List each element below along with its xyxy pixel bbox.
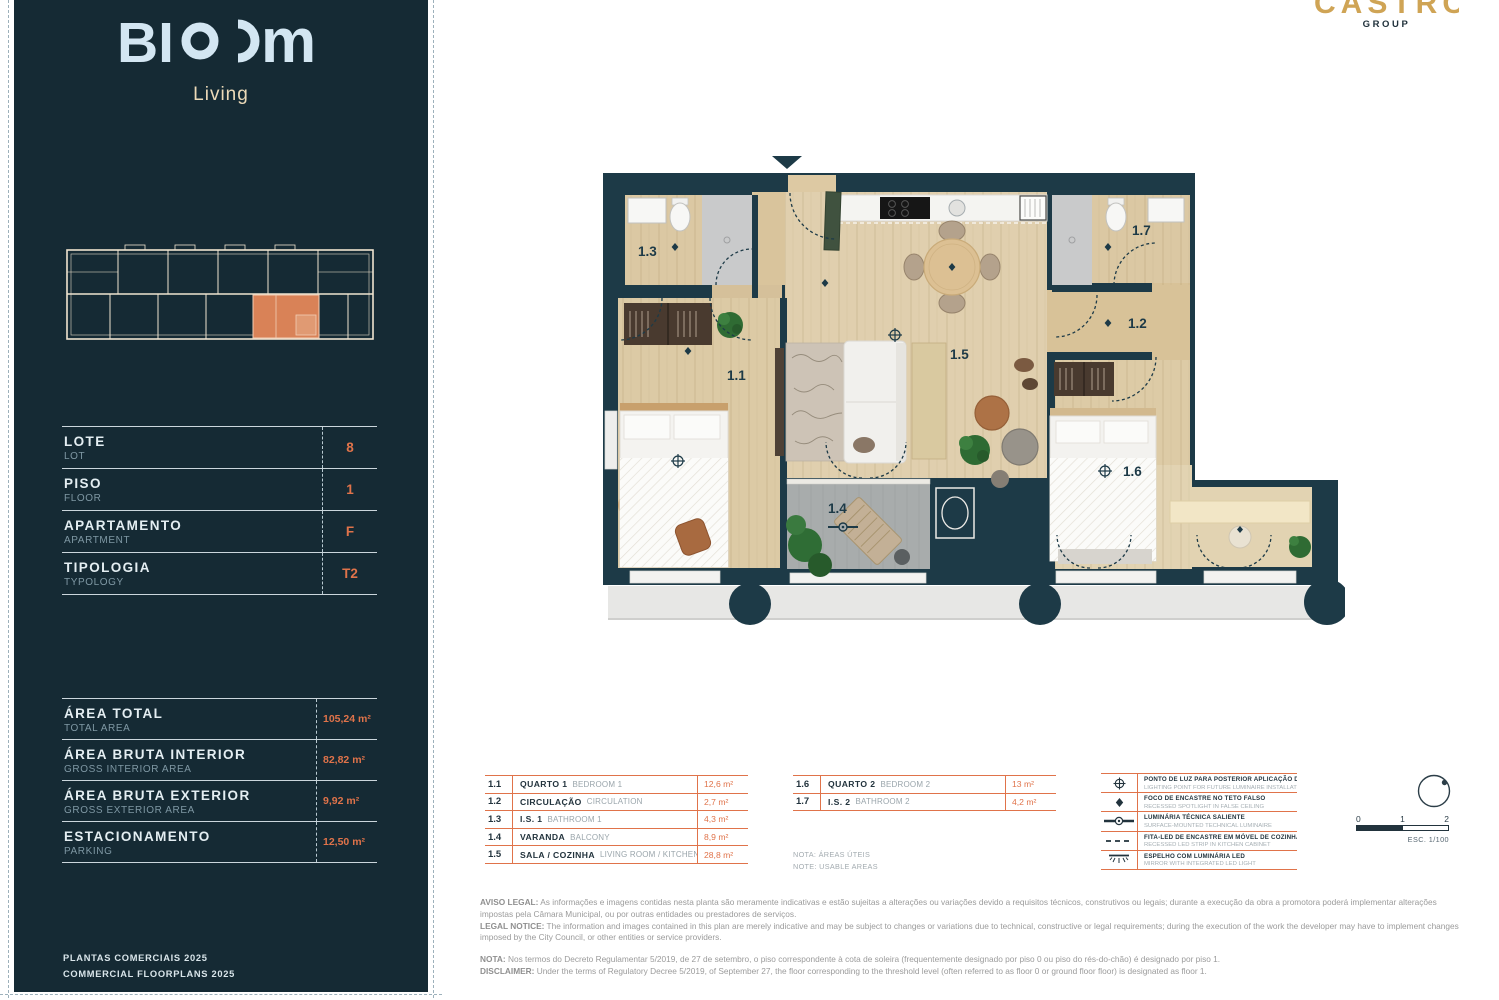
castro-name: CASTRO — [1314, 0, 1459, 17]
detail-row-apartamento: APARTAMENTO APARTMENT F — [62, 511, 377, 553]
recessed-spotlight-icon — [1101, 793, 1138, 811]
row-label-pt: ÁREA BRUTA EXTERIOR — [64, 788, 316, 803]
building-overview-plan — [63, 237, 378, 352]
entrance-arrow-icon — [772, 156, 802, 169]
walkway — [608, 579, 1345, 625]
scale-tick: 2 — [1444, 814, 1449, 824]
legend-row: 1.1 QUARTO 1 BEDROOM 1 12,6 m² — [485, 775, 748, 793]
crop-mark-left — [8, 0, 9, 998]
legend-name-pt: CIRCULAÇÃO — [520, 797, 582, 807]
symbol-label-en: RECESSED SPOTLIGHT IN FALSE CEILING — [1144, 804, 1297, 810]
legend-name-en: BEDROOM 1 — [572, 780, 622, 789]
regulatory-note: NOTA: Nos termos do Decreto Regulamentar… — [480, 954, 1472, 978]
row-label-en: GROSS EXTERIOR AREA — [64, 805, 316, 816]
row-value: T2 — [322, 553, 377, 594]
legend-name-en: CIRCULATION — [587, 797, 643, 806]
row-value: 1 — [322, 469, 377, 510]
footer-line-en: COMMERCIAL FLOORPLANS 2025 — [63, 966, 235, 982]
symbol-row: PONTO DE LUZ PARA POSTERIOR APLICAÇÃO DE… — [1101, 773, 1297, 792]
legal-notice-label: LEGAL NOTICE: — [480, 921, 544, 931]
row-value: 105,24 m² — [316, 699, 377, 739]
legend-table-a: 1.1 QUARTO 1 BEDROOM 1 12,6 m² 1.2 CIRCU… — [485, 775, 748, 864]
detail-row-tipologia: TIPOLOGIA TYPOLOGY T2 — [62, 553, 377, 595]
disclaimer-label: DISCLAIMER: — [480, 966, 534, 976]
disclaimer-paragraph: DISCLAIMER: Under the terms of Regulator… — [480, 966, 1472, 978]
row-label-pt: PISO — [64, 476, 322, 491]
symbol-row: LUMINÁRIA TÉCNICA SALIENTE SURFACE-MOUNT… — [1101, 811, 1297, 830]
note-line-pt: NOTA: ÁREAS ÚTEIS — [793, 849, 878, 861]
area-row-exterior: ÁREA BRUTA EXTERIOR GROSS EXTERIOR AREA … — [62, 781, 377, 822]
symbol-label-en: SURFACE-MOUNTED TECHNICAL LUMINAIRE — [1144, 823, 1297, 829]
footer-line-pt: PLANTAS COMERCIAIS 2025 — [63, 950, 235, 966]
symbol-row: FOCO DE ENCASTRE NO TETO FALSO RECESSED … — [1101, 792, 1297, 811]
room-label: 1.6 — [1123, 464, 1142, 479]
crop-mark-bottom — [0, 994, 442, 995]
scale-bar-graphic — [1356, 825, 1449, 831]
detail-row-piso: PISO FLOOR 1 — [62, 469, 377, 511]
led-strip-icon — [1101, 832, 1138, 850]
logo-letters-left: BI — [117, 16, 174, 72]
logo-crescent-icon — [238, 24, 255, 58]
note-line-en: NOTE: USABLE AREAS — [793, 861, 878, 873]
legal-notice: AVISO LEGAL: As informações e imagens co… — [480, 897, 1472, 944]
legend-num: 1.7 — [793, 794, 821, 811]
legend-name-en: BALCONY — [570, 833, 610, 842]
symbol-label-pt: PONTO DE LUZ PARA POSTERIOR APLICAÇÃO DE… — [1144, 776, 1297, 783]
legend-num: 1.2 — [485, 794, 513, 811]
row-label-pt: LOTE — [64, 434, 322, 449]
room-balcony — [786, 479, 930, 577]
symbol-row: FITA-LED DE ENCASTRE EM MÓVEL DE COZINHA… — [1101, 831, 1297, 850]
row-label-en: PARKING — [64, 846, 316, 857]
room-label: 1.3 — [638, 244, 657, 259]
areas-table: ÁREA TOTAL TOTAL AREA 105,24 m² ÁREA BRU… — [62, 698, 377, 863]
nota-label: NOTA: — [480, 954, 506, 964]
legend-row: 1.3 I.S. 1 BATHROOM 1 4,3 m² — [485, 810, 748, 828]
legend-area: 8,9 m² — [697, 829, 748, 846]
legend-name-en: BEDROOM 2 — [880, 780, 930, 789]
legal-notice-paragraph: LEGAL NOTICE: The information and images… — [480, 921, 1472, 945]
legend-table-b: 1.6 QUARTO 2 BEDROOM 2 13 m² 1.7 I.S. 2 … — [793, 775, 1056, 811]
legend-row: 1.2 CIRCULAÇÃO CIRCULATION 2,7 m² — [485, 793, 748, 811]
row-label-pt: TIPOLOGIA — [64, 560, 322, 575]
logo-letters-right: m — [261, 16, 316, 72]
mirror-led-icon — [1101, 851, 1138, 869]
row-value: F — [322, 511, 377, 552]
legend-name-pt: I.S. 1 — [520, 814, 542, 824]
legend-area: 4,3 m² — [697, 811, 748, 828]
row-label-pt: ESTACIONAMENTO — [64, 829, 316, 844]
row-value: 8 — [322, 427, 377, 468]
area-row-total: ÁREA TOTAL TOTAL AREA 105,24 m² — [62, 699, 377, 740]
symbol-label-pt: ESPELHO COM LUMINÁRIA LED — [1144, 853, 1297, 860]
scale-label: ESC. 1/100 — [1356, 835, 1449, 844]
legend-area: 28,8 m² — [697, 846, 748, 863]
symbol-label-en: LIGHTING POINT FOR FUTURE LUMINAIRE INST… — [1144, 785, 1297, 791]
row-label-en: TYPOLOGY — [64, 577, 322, 588]
castro-group-logo: CASTRO GROUP — [1314, 0, 1459, 30]
bloom-wordmark: BI m — [115, 16, 327, 72]
symbol-label-pt: FITA-LED DE ENCASTRE EM MÓVEL DE COZINHA — [1144, 834, 1297, 841]
detail-row-lote: LOTE LOT 8 — [62, 427, 377, 469]
crop-mark-right — [433, 0, 434, 998]
legend-name-en: BATHROOM 1 — [547, 815, 601, 824]
legend-name-pt: QUARTO 2 — [828, 779, 875, 789]
legend-num: 1.5 — [485, 846, 513, 863]
area-row-parking: ESTACIONAMENTO PARKING 12,50 m² — [62, 822, 377, 863]
castro-sub: GROUP — [1314, 19, 1459, 30]
row-label-en: GROSS INTERIOR AREA — [64, 764, 316, 775]
area-row-interior: ÁREA BRUTA INTERIOR GROSS INTERIOR AREA … — [62, 740, 377, 781]
unit-details-table: LOTE LOT 8 PISO FLOOR 1 APARTAMENTO APAR… — [62, 426, 377, 595]
logo-ring-icon — [186, 27, 214, 55]
aviso-legal-paragraph: AVISO LEGAL: As informações e imagens co… — [480, 897, 1472, 921]
row-label-en: TOTAL AREA — [64, 723, 316, 734]
row-label-pt: ÁREA TOTAL — [64, 706, 316, 721]
brand-subtitle: Living — [14, 84, 428, 106]
sidebar-panel: BI m Living — [14, 0, 428, 992]
legend-num: 1.1 — [485, 776, 513, 793]
scale-tick: 0 — [1356, 814, 1361, 824]
row-label-en: FLOOR — [64, 493, 322, 504]
legend-name-pt: I.S. 2 — [828, 797, 850, 807]
room-label: 1.2 — [1128, 316, 1147, 331]
legend-name-pt: VARANDA — [520, 832, 565, 842]
legend-area: 12,6 m² — [697, 776, 748, 793]
technical-luminaire-icon — [1101, 812, 1138, 830]
legend-num: 1.4 — [485, 829, 513, 846]
row-label-pt: ÁREA BRUTA INTERIOR — [64, 747, 316, 762]
row-label-en: LOT — [64, 451, 322, 462]
nota-paragraph: NOTA: Nos termos do Decreto Regulamentar… — [480, 954, 1472, 966]
row-value: 12,50 m² — [316, 822, 377, 862]
lighting-point-icon — [1101, 774, 1138, 792]
row-label-pt: APARTAMENTO — [64, 518, 322, 533]
legend-area: 2,7 m² — [697, 794, 748, 811]
aviso-legal-label: AVISO LEGAL: — [480, 897, 538, 907]
room-label: 1.4 — [828, 501, 847, 516]
legend-name-en: BATHROOM 2 — [855, 797, 909, 806]
legend-row: 1.5 SALA / COZINHA LIVING ROOM / KITCHEN… — [485, 845, 748, 863]
scale-bar: 0 1 2 ESC. 1/100 — [1356, 814, 1449, 844]
room-label: 1.5 — [950, 347, 969, 362]
symbols-legend: PONTO DE LUZ PARA POSTERIOR APLICAÇÃO DE… — [1101, 773, 1297, 870]
legend-num: 1.3 — [485, 811, 513, 828]
legend-row: 1.6 QUARTO 2 BEDROOM 2 13 m² — [793, 775, 1056, 793]
usable-areas-note: NOTA: ÁREAS ÚTEIS NOTE: USABLE AREAS — [793, 849, 878, 873]
legend-num: 1.6 — [793, 776, 821, 793]
scale-tick: 1 — [1400, 814, 1405, 824]
floor-plan: 1.3 1.1 1.5 1.7 1.2 1.6 1.4 — [600, 153, 1345, 631]
row-value: 82,82 m² — [316, 740, 377, 780]
symbol-row: ESPELHO COM LUMINÁRIA LED MIRROR WITH IN… — [1101, 850, 1297, 869]
bloom-logo: BI m — [14, 16, 428, 72]
legend-name-pt: SALA / COZINHA — [520, 850, 595, 860]
legend-row: 1.7 I.S. 2 BATHROOM 2 4,2 m² — [793, 793, 1056, 811]
symbol-label-en: MIRROR WITH INTEGRATED LED LIGHT — [1144, 861, 1297, 867]
legend-name-en: LIVING ROOM / KITCHEN — [600, 850, 697, 859]
legend-row: 1.4 VARANDA BALCONY 8,9 m² — [485, 828, 748, 846]
symbol-label-en: RECESSED LED STRIP IN KITCHEN CABINET — [1144, 842, 1297, 848]
room-label: 1.7 — [1132, 223, 1151, 238]
symbol-label-pt: FOCO DE ENCASTRE NO TETO FALSO — [1144, 795, 1297, 802]
symbol-label-pt: LUMINÁRIA TÉCNICA SALIENTE — [1144, 814, 1297, 821]
row-value: 9,92 m² — [316, 781, 377, 821]
north-indicator-icon — [1412, 770, 1458, 814]
highlighted-unit — [253, 295, 319, 338]
legend-area: 13 m² — [1005, 776, 1056, 793]
legend-name-pt: QUARTO 1 — [520, 779, 567, 789]
room-label: 1.1 — [727, 368, 746, 383]
legend-area: 4,2 m² — [1005, 794, 1056, 811]
floorplan-sheet: BI m Living — [0, 0, 1499, 1000]
scale-ticks: 0 1 2 — [1356, 814, 1449, 824]
row-label-en: APARTMENT — [64, 535, 322, 546]
sidebar-footer: PLANTAS COMERCIAIS 2025 COMMERCIAL FLOOR… — [63, 950, 235, 983]
